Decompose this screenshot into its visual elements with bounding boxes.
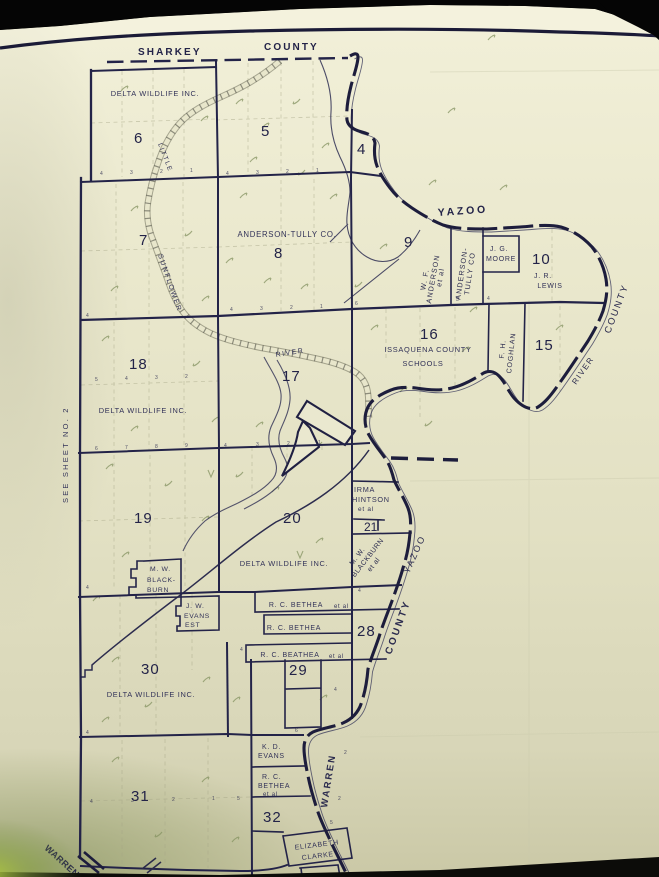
svg-text:DELTA WILDLIFE INC.: DELTA WILDLIFE INC. [107, 690, 196, 699]
svg-text:4: 4 [224, 443, 227, 449]
svg-text:10: 10 [532, 251, 551, 268]
svg-text:5: 5 [330, 820, 333, 826]
svg-text:4: 4 [100, 171, 103, 177]
svg-text:R. C. BEATHEA: R. C. BEATHEA [260, 652, 319, 659]
svg-text:5: 5 [456, 297, 459, 303]
svg-text:32: 32 [263, 809, 282, 826]
svg-text:SEE SHEET NO. 2: SEE SHEET NO. 2 [61, 406, 70, 503]
svg-text:COUNTY: COUNTY [264, 42, 319, 53]
svg-text:4: 4 [358, 588, 361, 594]
svg-text:MOORE: MOORE [486, 256, 516, 263]
svg-text:J. G.: J. G. [490, 246, 508, 253]
svg-text:9: 9 [404, 234, 413, 251]
svg-text:R. C.: R. C. [262, 774, 281, 781]
svg-text:DELTA WILDLIFE INC.: DELTA WILDLIFE INC. [240, 559, 329, 568]
svg-text:6: 6 [134, 130, 143, 147]
svg-text:7: 7 [139, 232, 148, 249]
svg-text:3: 3 [256, 170, 259, 176]
svg-text:29: 29 [289, 662, 308, 679]
svg-text:20: 20 [283, 510, 302, 527]
svg-text:1: 1 [318, 440, 321, 446]
svg-text:5: 5 [95, 377, 98, 383]
svg-text:30: 30 [141, 661, 160, 678]
svg-text:J. R.: J. R. [534, 273, 552, 280]
svg-text:ISSAQUENA COUNTY: ISSAQUENA COUNTY [384, 345, 471, 354]
svg-text:3: 3 [130, 170, 133, 176]
svg-text:HINTSON: HINTSON [352, 495, 390, 504]
svg-text:5: 5 [237, 796, 240, 802]
svg-text:17: 17 [282, 368, 301, 385]
svg-text:3: 3 [131, 798, 134, 804]
svg-text:SCHOOLS: SCHOOLS [402, 359, 443, 368]
svg-text:EVANS: EVANS [258, 753, 285, 760]
svg-text:3: 3 [155, 375, 158, 381]
svg-text:BETHEA: BETHEA [258, 783, 290, 790]
svg-text:4: 4 [334, 687, 337, 693]
svg-text:16: 16 [420, 326, 439, 343]
svg-text:ANDERSON-TULLY CO.: ANDERSON-TULLY CO. [238, 230, 337, 239]
svg-text:3: 3 [256, 442, 259, 448]
svg-text:4: 4 [226, 171, 229, 177]
svg-text:4: 4 [357, 141, 366, 158]
svg-text:15: 15 [535, 337, 554, 354]
svg-text:2: 2 [185, 374, 188, 380]
svg-text:28: 28 [357, 623, 376, 640]
svg-text:2: 2 [287, 441, 290, 447]
svg-text:R. C. BETHEA: R. C. BETHEA [269, 602, 323, 609]
svg-text:6: 6 [95, 446, 98, 452]
svg-text:DELTA WILDLIFE INC.: DELTA WILDLIFE INC. [111, 89, 200, 98]
svg-text:4: 4 [86, 730, 89, 736]
svg-text:2: 2 [290, 305, 293, 311]
svg-text:2: 2 [286, 169, 289, 175]
svg-text:1: 1 [316, 168, 319, 174]
svg-text:19: 19 [134, 510, 153, 527]
svg-text:1: 1 [320, 304, 323, 310]
svg-text:SHARKEY: SHARKEY [138, 47, 202, 58]
svg-text:BURN: BURN [147, 587, 169, 594]
svg-text:IRMA: IRMA [354, 485, 375, 494]
svg-text:EST: EST [185, 622, 200, 629]
svg-text:BLACK-: BLACK- [147, 577, 176, 584]
svg-text:7: 7 [125, 445, 128, 451]
svg-text:1: 1 [212, 796, 215, 802]
svg-text:31: 31 [131, 788, 150, 805]
svg-text:DELTA WILDLIFE INC.: DELTA WILDLIFE INC. [99, 406, 188, 415]
svg-text:4: 4 [487, 296, 490, 302]
svg-text:9: 9 [185, 443, 188, 449]
svg-text:LEWIS: LEWIS [537, 283, 562, 290]
svg-text:3: 3 [260, 306, 263, 312]
svg-text:et al: et al [263, 792, 278, 798]
svg-text:8: 8 [155, 444, 158, 450]
svg-text:4: 4 [90, 799, 93, 805]
svg-text:1: 1 [190, 168, 193, 174]
svg-text:6: 6 [355, 301, 358, 307]
svg-text:4: 4 [125, 376, 128, 382]
svg-text:21: 21 [364, 520, 378, 534]
svg-text:2: 2 [172, 797, 175, 803]
svg-text:18: 18 [129, 356, 148, 373]
svg-text:et al: et al [334, 604, 349, 610]
svg-text:et al: et al [358, 506, 374, 513]
svg-text:4: 4 [240, 647, 243, 653]
svg-text:4: 4 [86, 313, 89, 319]
svg-text:6: 6 [295, 728, 298, 734]
svg-text:4: 4 [86, 585, 89, 591]
svg-text:K. D.: K. D. [262, 744, 281, 751]
svg-text:M. W.: M. W. [150, 566, 171, 573]
svg-text:R. C. BETHEA: R. C. BETHEA [267, 625, 321, 632]
svg-text:J. W.: J. W. [186, 603, 205, 610]
svg-text:2: 2 [160, 169, 163, 175]
svg-text:4: 4 [230, 307, 233, 313]
svg-text:2: 2 [344, 750, 347, 756]
svg-text:2: 2 [338, 796, 341, 802]
svg-text:et al: et al [329, 654, 344, 660]
svg-text:8: 8 [274, 245, 283, 262]
svg-text:5: 5 [261, 123, 270, 140]
svg-text:EVANS: EVANS [184, 613, 210, 620]
